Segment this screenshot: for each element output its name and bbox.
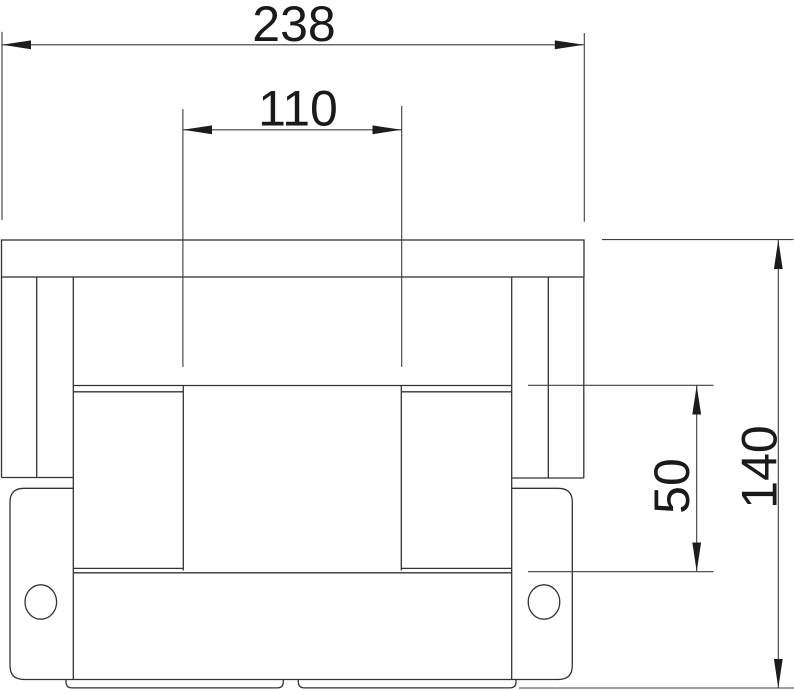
drawing-canvas: 238 110 140 50 (0, 0, 794, 690)
base-plate-outline (10, 488, 572, 679)
arrowhead-down-icon (774, 659, 783, 688)
step-height-label: 50 (644, 458, 700, 514)
overall-height-label: 140 (732, 425, 788, 508)
foot-tab-left (66, 680, 283, 688)
enclosure-outline (2, 240, 585, 688)
mounting-hole-right (528, 585, 560, 619)
arrowhead-down-icon (692, 543, 701, 572)
arrowhead-left-icon (183, 125, 212, 134)
inner-width-label: 110 (258, 81, 338, 137)
overall-width-label: 238 (252, 0, 335, 52)
arrowhead-left-icon (2, 40, 31, 49)
arrowhead-up-icon (774, 240, 783, 269)
arrowhead-up-icon (692, 386, 701, 415)
technical-drawing: 238 110 140 50 (0, 0, 794, 690)
foot-tab-right (298, 680, 516, 688)
lid-outline (2, 240, 585, 277)
arrowhead-right-icon (373, 125, 402, 134)
dimension-inner-width: 110 (183, 81, 402, 368)
arrowhead-right-icon (555, 40, 584, 49)
mounting-hole-left (25, 585, 57, 619)
